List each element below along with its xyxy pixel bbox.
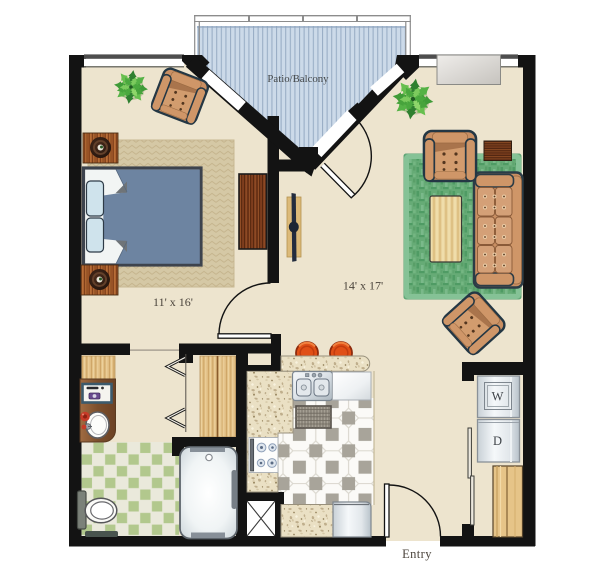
svg-text:14' x 17': 14' x 17' — [343, 279, 383, 293]
svg-text:Entry: Entry — [402, 547, 432, 561]
svg-text:W: W — [492, 390, 504, 404]
svg-text:11' x 16': 11' x 16' — [153, 295, 193, 309]
svg-text:Patio/Balcony: Patio/Balcony — [267, 73, 329, 85]
svg-text:D: D — [493, 434, 502, 448]
